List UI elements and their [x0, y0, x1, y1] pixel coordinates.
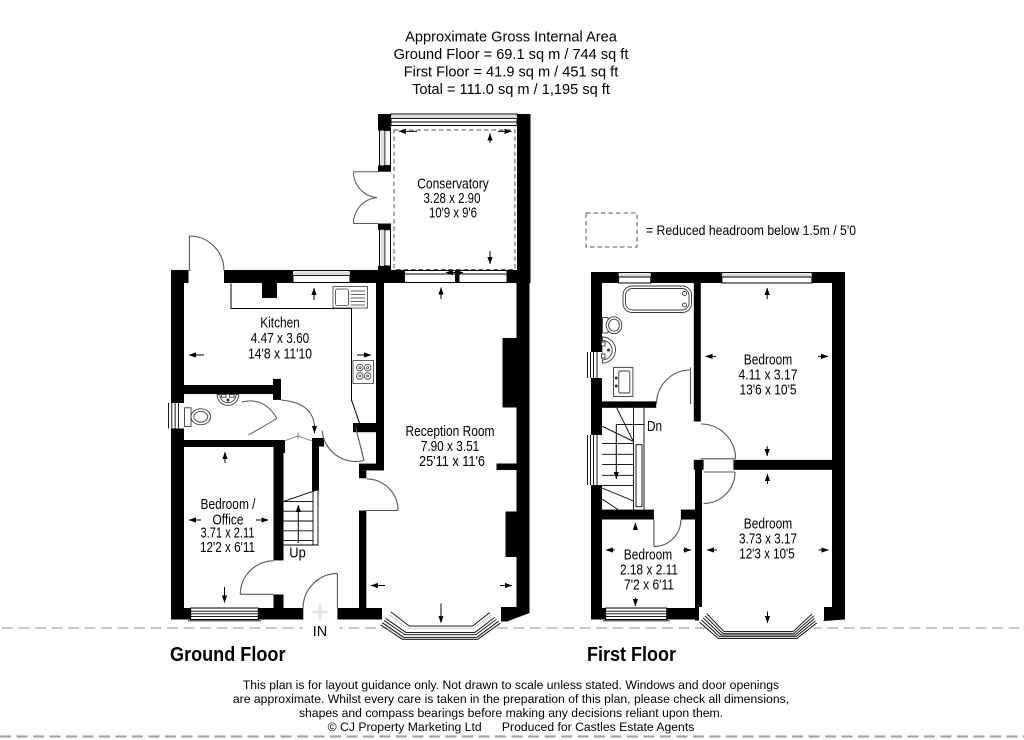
svg-text:Kitchen: Kitchen [260, 315, 300, 332]
svg-text:IN: IN [313, 624, 328, 640]
svg-text:© CJ Property Marketing Ltd: © CJ Property Marketing Ltd Produced for… [328, 720, 695, 734]
svg-text:shapes and compass bearings be: shapes and compass bearings before makin… [299, 706, 723, 720]
svg-text:10'9 x 9'6: 10'9 x 9'6 [429, 205, 477, 222]
svg-text:Ground Floor = 69.1 sq m / 744: Ground Floor = 69.1 sq m / 744 sq ft [394, 47, 629, 63]
svg-text:Approximate Gross Internal Are: Approximate Gross Internal Area [405, 30, 618, 46]
svg-text:12'3 x 10'5: 12'3 x 10'5 [739, 546, 795, 563]
svg-text:4.47 x 3.60: 4.47 x 3.60 [251, 330, 310, 347]
svg-text:7'2 x 6'11: 7'2 x 6'11 [624, 577, 674, 594]
svg-text:First Floor: First Floor [587, 644, 676, 666]
svg-text:This plan is for layout guidan: This plan is for layout guidance only. N… [243, 678, 779, 692]
svg-text:13'6 x 10'5: 13'6 x 10'5 [740, 382, 797, 399]
svg-text:Ground Floor: Ground Floor [170, 644, 286, 666]
svg-text:14'8 x 11'10: 14'8 x 11'10 [248, 346, 312, 363]
svg-text:Up: Up [289, 546, 306, 562]
svg-text:Total = 111.0 sq m / 1,195 sq: Total = 111.0 sq m / 1,195 sq ft [412, 82, 610, 98]
svg-text:25'11 x 11'6: 25'11 x 11'6 [419, 453, 485, 470]
svg-text:are approximate. Whilst every: are approximate. Whilst every care is ta… [233, 692, 789, 706]
svg-text:12'2 x 6'11: 12'2 x 6'11 [200, 539, 255, 556]
svg-text:First Floor = 41.9 sq m / 451: First Floor = 41.9 sq m / 451 sq ft [404, 65, 619, 81]
svg-text:Dn: Dn [647, 419, 662, 435]
svg-text:Bedroom /: Bedroom / [201, 496, 257, 513]
svg-text:= Reduced headroom below 1.5m: = Reduced headroom below 1.5m / 5'0 [646, 223, 856, 238]
